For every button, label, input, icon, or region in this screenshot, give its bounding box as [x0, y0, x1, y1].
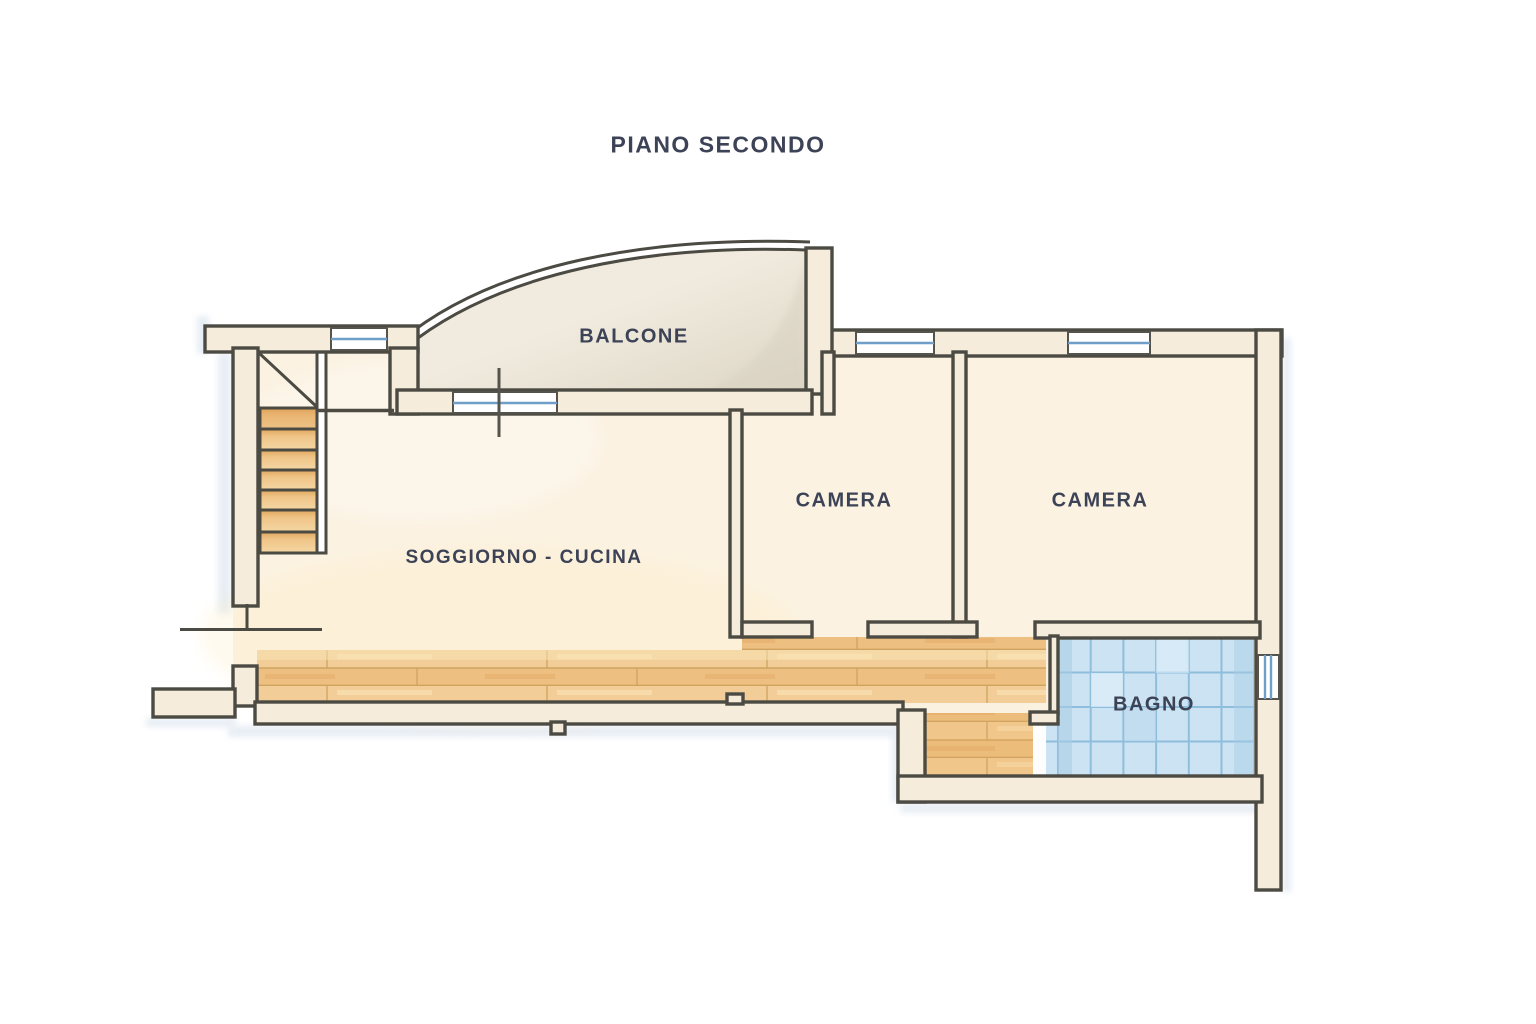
window-top-left [331, 328, 387, 350]
room-label-camera-2: CAMERA [1052, 490, 1149, 513]
wall-bagno-door-jamb [1030, 712, 1058, 724]
wall-left-ledge [153, 689, 235, 717]
room-label-bagno: BAGNO [1113, 694, 1195, 717]
wall-bagno-bottom [898, 776, 1262, 802]
wall-bottom-main [255, 702, 903, 724]
wall-left [233, 348, 258, 606]
balcone-area [413, 241, 810, 394]
room-label-soggiorno-cucina: SOGGIORNO - CUCINA [405, 547, 642, 569]
window-camera2 [1068, 332, 1150, 354]
corridor-wood-right [742, 637, 1046, 703]
wall-corridor-top-2 [868, 622, 977, 637]
wall-corridor-top-1 [742, 622, 812, 637]
wall-corridor-jamb [727, 694, 743, 704]
room-label-balcone: BALCONE [579, 326, 688, 349]
wall-camera1-step [822, 352, 834, 414]
wall-soggiorno-camera1 [730, 410, 742, 637]
wall-bagno-top [1035, 622, 1260, 638]
wall-bagno-left [1050, 636, 1058, 714]
page-title: PIANO SECONDO [610, 132, 825, 159]
window-bagno [1258, 655, 1279, 699]
wall-right [1256, 330, 1281, 890]
stair-railing [317, 352, 326, 553]
room-label-camera-1: CAMERA [796, 490, 893, 513]
floor-plan-canvas: PIANO SECONDO BALCONE SOGGIORNO - CUCINA… [0, 0, 1536, 1024]
wall-camera1-camera2 [953, 352, 966, 637]
wall-bottom-notch [551, 722, 565, 734]
window-camera1 [856, 332, 934, 354]
